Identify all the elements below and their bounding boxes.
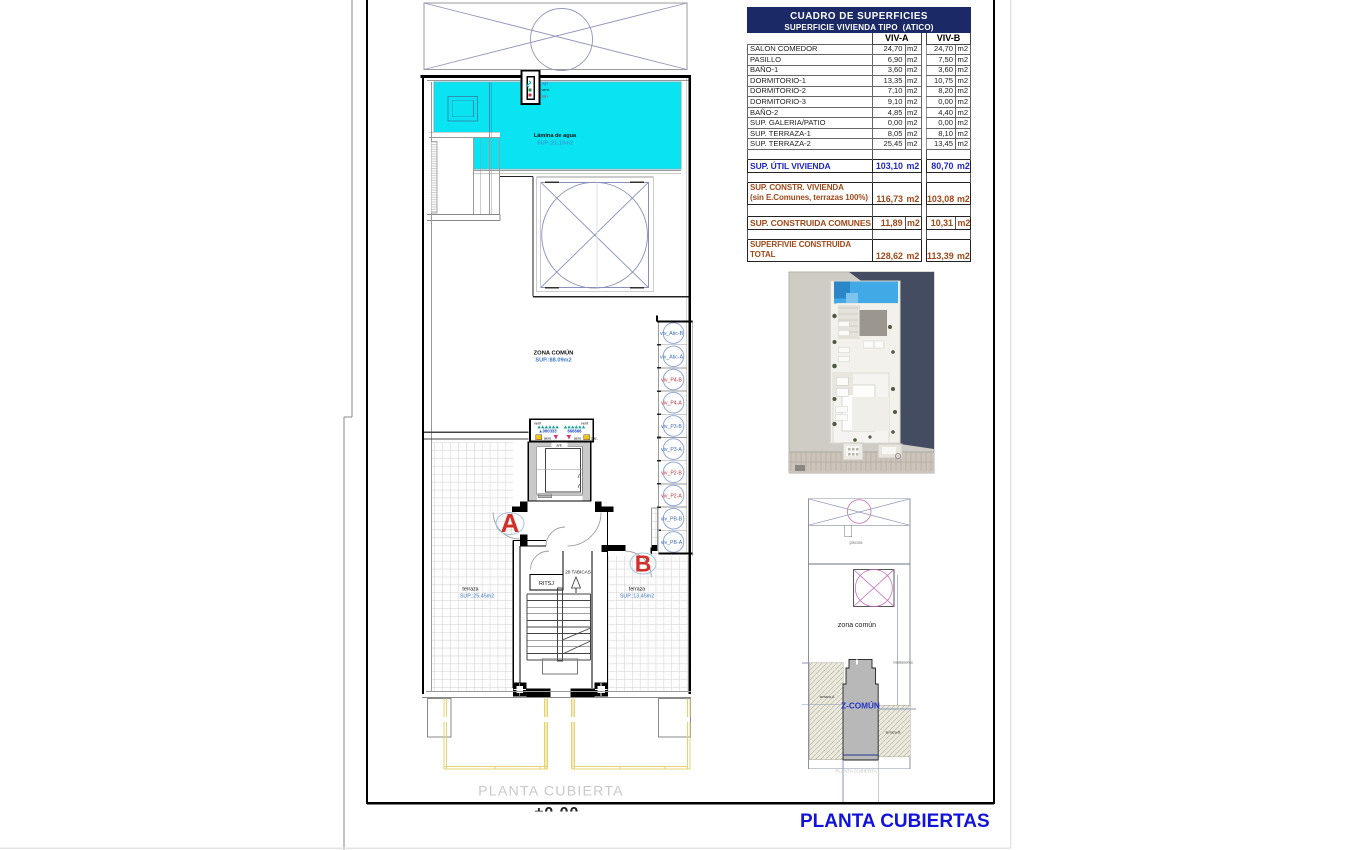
svg-text:ZONA COMÚN: ZONA COMÚN	[534, 349, 574, 356]
svg-text:terraza: terraza	[629, 586, 645, 592]
svg-text:B: B	[635, 551, 652, 577]
svg-text:viv_PB-B: viv_PB-B	[661, 517, 683, 523]
svg-text:666666: 666666	[568, 429, 583, 434]
svg-text:terraza: terraza	[462, 586, 478, 592]
svg-text:20 TABICAS: 20 TABICAS	[565, 570, 591, 575]
svg-text:viv_P3-A: viv_P3-A	[661, 447, 682, 453]
svg-text:SUP.:13,45m2: SUP.:13,45m2	[620, 593, 654, 599]
svg-text:instalaciones: instalaciones	[893, 661, 913, 665]
svg-text:viv_P2-B: viv_P2-B	[661, 470, 682, 476]
svg-text:viv_P4-A: viv_P4-A	[661, 401, 682, 407]
svg-text:PLANTA CUBIERTA: PLANTA CUBIERTA	[835, 768, 877, 773]
svg-text:viv_Atic-B: viv_Atic-B	[660, 331, 684, 337]
svg-text:viv_Atic-A: viv_Atic-A	[660, 354, 684, 360]
svg-text:PLANTA CUBIERTA: PLANTA CUBIERTA	[478, 784, 624, 800]
svg-text:RITSJ: RITSJ	[539, 581, 554, 587]
svg-text:terraza-B: terraza-B	[886, 731, 901, 735]
svg-text:viv_P4-B: viv_P4-B	[661, 378, 682, 384]
svg-text:A: A	[501, 508, 520, 538]
svg-text:aero: aero	[544, 436, 552, 440]
svg-text:▲000333: ▲000333	[538, 429, 557, 434]
svg-text:SUP.:21,15m2: SUP.:21,15m2	[537, 140, 573, 146]
svg-text:SUP.:25,45m2: SUP.:25,45m2	[460, 593, 494, 599]
svg-text:vent: vent	[581, 422, 589, 426]
svg-text:±0.00: ±0.00	[535, 805, 580, 822]
svg-text:agu: agu	[542, 82, 548, 86]
svg-text:aero: aero	[574, 436, 582, 440]
svg-text:viv_P2-A: viv_P2-A	[661, 494, 682, 500]
svg-text:zona común: zona común	[838, 622, 876, 629]
svg-text:viv_PB-A: viv_PB-A	[661, 540, 683, 546]
svg-text:vent.: vent.	[542, 88, 550, 92]
svg-text:piscina: piscina	[849, 540, 863, 545]
svg-text:terraza-A: terraza-A	[820, 695, 835, 699]
svg-text:Z-COMÚN: Z-COMÚN	[841, 700, 880, 711]
svg-text:san: san	[542, 95, 548, 99]
svg-text:SUP.:88.09m2: SUP.:88.09m2	[535, 357, 571, 363]
svg-text:cac.: cac.	[591, 436, 598, 440]
svg-text:Lámina de agua: Lámina de agua	[534, 133, 577, 139]
svg-text:vent: vent	[534, 422, 542, 426]
svg-text:ant.: ant.	[556, 444, 562, 448]
svg-text:viv_P3-B: viv_P3-B	[661, 424, 682, 430]
